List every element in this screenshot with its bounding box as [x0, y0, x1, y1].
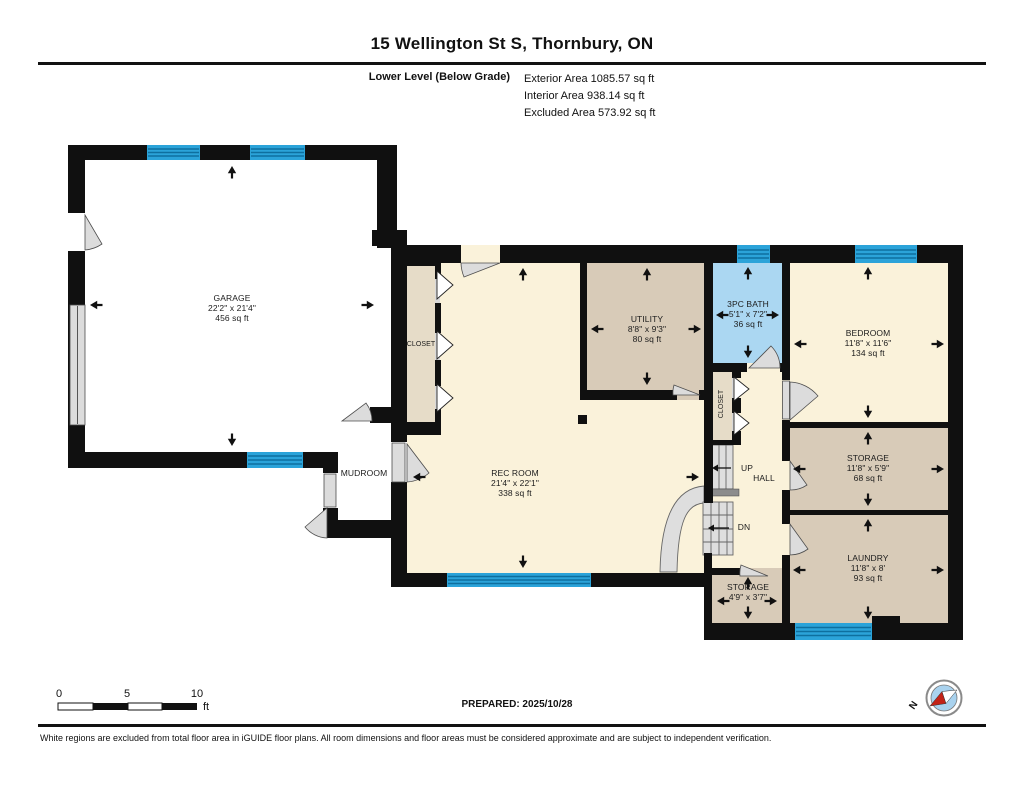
- mudroom-exterior-door: [305, 508, 327, 538]
- mudroom-rec-door-slab: [392, 443, 405, 482]
- up-label: UP: [741, 463, 753, 473]
- room-area: 134 sq ft: [845, 348, 892, 358]
- footer-divider: [38, 724, 986, 727]
- room-name: REC ROOM: [491, 468, 539, 478]
- label-up: UP: [741, 463, 753, 473]
- room-dims: 21'4" x 22'1": [491, 478, 539, 488]
- garage-window-1: [147, 145, 200, 160]
- garage-entry-door: [85, 215, 102, 250]
- room-name: CLOSET: [717, 390, 727, 419]
- room-label-hall-closet: CLOSET: [717, 390, 727, 419]
- room-dims: 4'9" x 3'7": [727, 592, 769, 602]
- room-name: 3PC BATH: [727, 299, 769, 309]
- room-name: UTILITY: [628, 314, 666, 324]
- room-label-mudroom: MUDROOM: [341, 468, 388, 478]
- room-name: HALL: [753, 473, 775, 483]
- prepared-date: PREPARED: 2025/10/28: [0, 699, 1024, 710]
- room-dims: 8'8" x 9'3": [628, 324, 666, 334]
- room-name: CLOSET: [407, 340, 436, 350]
- room-label-bedroom: BEDROOM 11'8" x 11'6" 134 sq ft: [845, 328, 892, 358]
- room-label-rec-closet: CLOSET: [407, 340, 436, 350]
- room-name: GARAGE: [208, 293, 256, 303]
- room-name: BEDROOM: [845, 328, 892, 338]
- room-label-rec-room: REC ROOM 21'4" x 22'1" 338 sq ft: [491, 468, 539, 498]
- floorplan-drawing: N: [0, 0, 1024, 791]
- disclaimer-text: White regions are excluded from total fl…: [40, 733, 771, 743]
- bath-window: [737, 245, 770, 263]
- room-label-laundry: LAUNDRY 11'8" x 8' 93 sq ft: [847, 553, 888, 583]
- room-name: STORAGE: [727, 582, 769, 592]
- room-area: 36 sq ft: [727, 319, 769, 329]
- room-label-bath: 3PC BATH 5'1" x 7'2" 36 sq ft: [727, 299, 769, 329]
- compass-icon: N: [907, 681, 961, 716]
- room-label-storage: STORAGE 11'8" x 5'9" 68 sq ft: [847, 453, 889, 483]
- room-area: 338 sq ft: [491, 488, 539, 498]
- mudroom-exterior-door-slab: [324, 474, 336, 507]
- mudroom-garage-door: [342, 403, 372, 421]
- rec-room-window: [447, 573, 591, 587]
- room-dims: 5'1" x 7'2": [727, 309, 769, 319]
- room-label-garage: GARAGE 22'2" x 21'4" 456 sq ft: [208, 293, 256, 323]
- room-area: 80 sq ft: [628, 334, 666, 344]
- room-area: 456 sq ft: [208, 313, 256, 323]
- bedroom-door-slab: [783, 381, 790, 419]
- bedroom-window: [855, 245, 917, 263]
- room-dims: 11'8" x 8': [847, 563, 888, 573]
- room-name: MUDROOM: [341, 468, 388, 478]
- room-label-hall: HALL: [753, 473, 775, 483]
- room-area: 93 sq ft: [847, 573, 888, 583]
- room-name: LAUNDRY: [847, 553, 888, 563]
- dn-label: DN: [738, 522, 750, 532]
- garage-window-2: [250, 145, 305, 160]
- room-name: STORAGE: [847, 453, 889, 463]
- room-label-utility: UTILITY 8'8" x 9'3" 80 sq ft: [628, 314, 666, 344]
- room-area: 68 sq ft: [847, 473, 889, 483]
- room-dims: 22'2" x 21'4": [208, 303, 256, 313]
- post-column: [578, 415, 587, 424]
- room-dims: 11'8" x 11'6": [845, 338, 892, 348]
- floorplan-page: 15 Wellington St S, Thornbury, ON Lower …: [0, 0, 1024, 791]
- laundry-window: [795, 623, 872, 640]
- label-dn: DN: [738, 522, 750, 532]
- room-label-storage-small: STORAGE 4'9" x 3'7": [727, 582, 769, 602]
- room-dims: 11'8" x 5'9": [847, 463, 889, 473]
- garage-window-3: [247, 452, 303, 468]
